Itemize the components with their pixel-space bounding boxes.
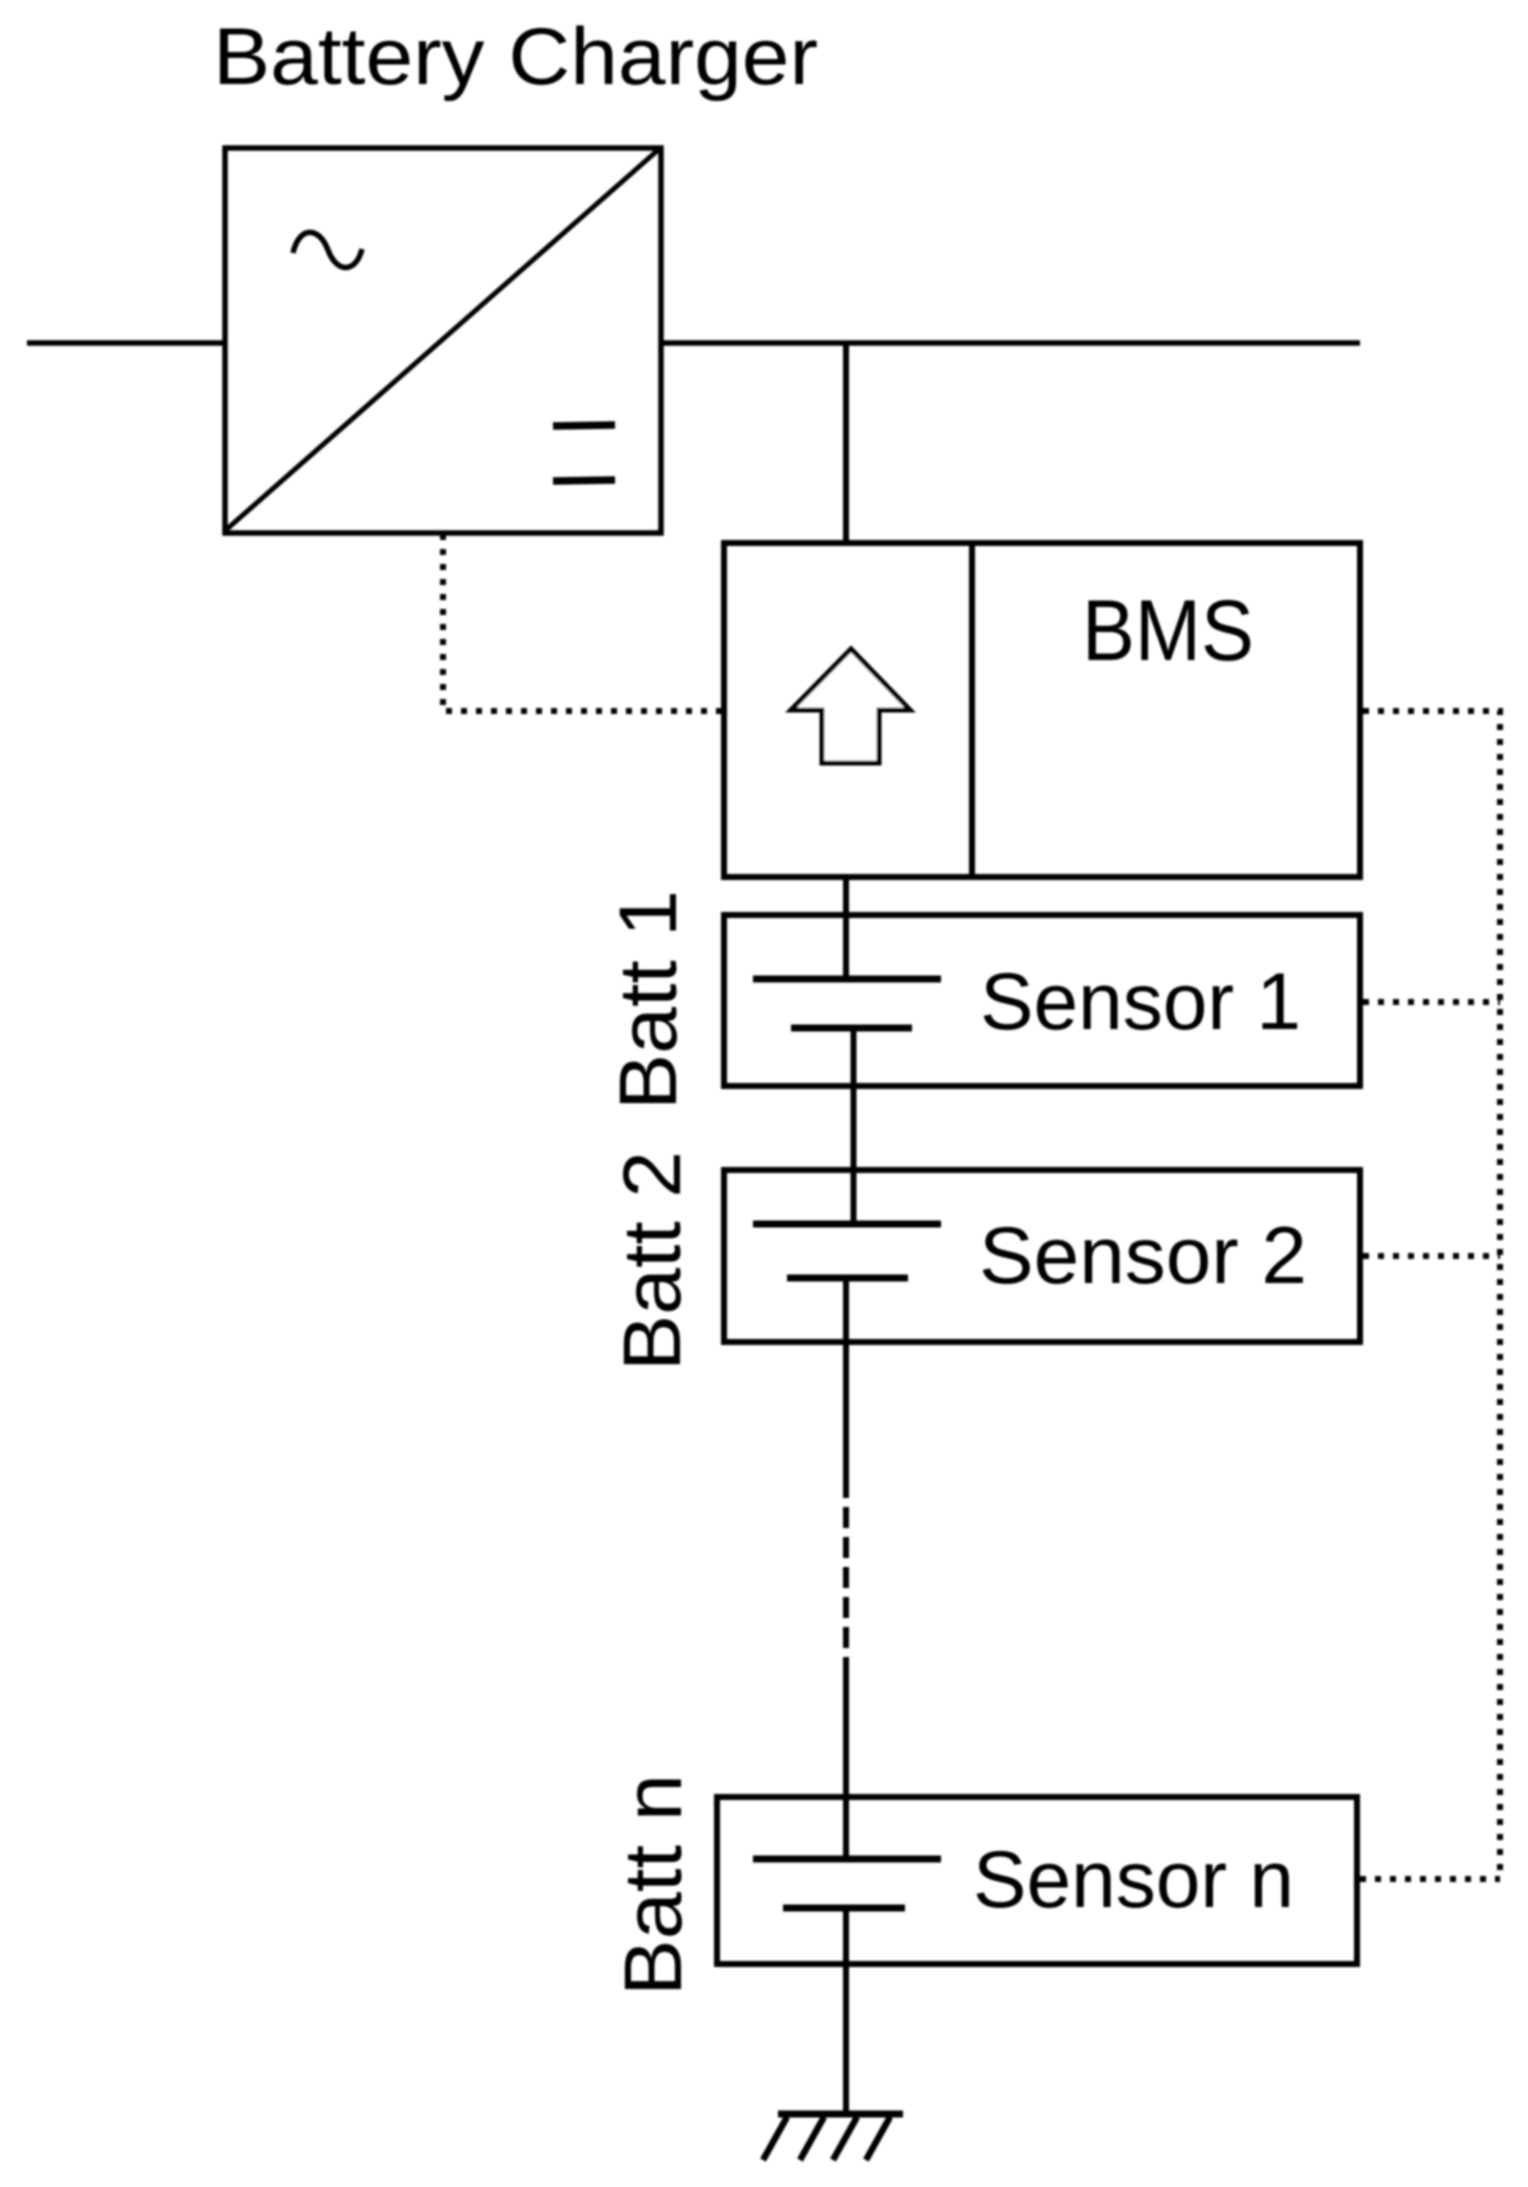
svg-text:Sensor n: Sensor n	[973, 1835, 1294, 1925]
svg-text:Batt 2: Batt 2	[607, 1151, 698, 1371]
svg-text:Battery Charger: Battery Charger	[213, 12, 818, 102]
svg-text:Batt n: Batt n	[608, 1774, 699, 1996]
svg-text:Sensor 1: Sensor 1	[980, 957, 1301, 1047]
svg-text:BMS: BMS	[1082, 583, 1254, 679]
svg-text:Batt 1: Batt 1	[603, 890, 694, 1110]
svg-text:Sensor 2: Sensor 2	[979, 1211, 1307, 1301]
